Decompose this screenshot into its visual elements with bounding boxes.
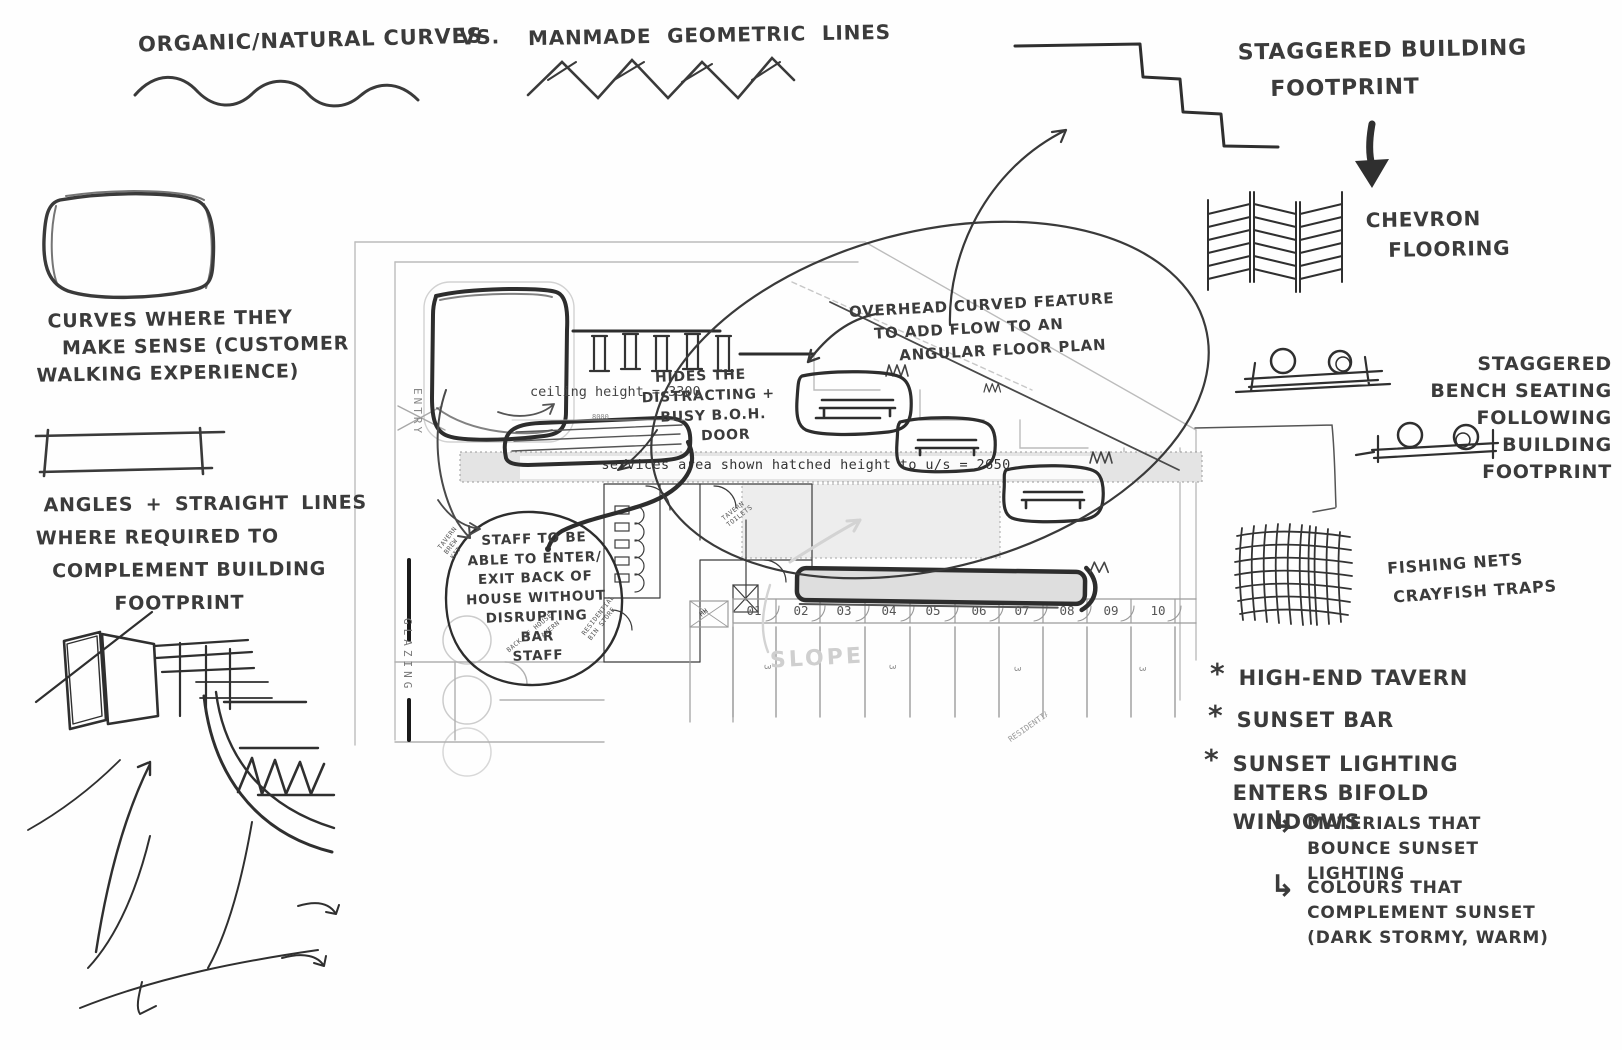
asterisk-icon: * xyxy=(1210,664,1225,693)
note-line: BENCH SEATING xyxy=(1400,378,1612,405)
bullet-high-end-tavern: * HIGH-END TAVERN xyxy=(1210,664,1468,693)
note-line: STAGGERED xyxy=(1400,351,1612,378)
note-curves-where: CURVES WHERE THEY MAKE SENSE (CUSTOMER W… xyxy=(39,303,350,389)
stall-depth-label: 3 xyxy=(1137,666,1147,671)
note-line: COMPLEMENT BUILDING xyxy=(52,553,368,589)
stall-number: 08 xyxy=(1054,603,1080,618)
stall-number: 01 xyxy=(741,603,767,618)
plan-slope-label: SLOPE xyxy=(769,642,864,677)
corner-step-lines xyxy=(1195,425,1336,512)
stall-number: 10 xyxy=(1145,603,1171,618)
note-line: ANGLES + STRAIGHT LINES xyxy=(43,487,367,523)
note-fishing-nets: FISHING NETS CRAYFISH TRAPS xyxy=(1386,542,1558,612)
plan-ceiling-height-label: ceiling height = 3300 xyxy=(530,384,701,400)
note-line: BUILDING xyxy=(1400,432,1612,459)
stall-number: 06 xyxy=(966,603,992,618)
asterisk-icon: * xyxy=(1208,706,1223,735)
sub-bullet-colours: ↳ COLOURS THAT COMPLEMENT SUNSET (DARK S… xyxy=(1270,876,1597,951)
note-staff-circle: STAFF TO BE ABLE TO ENTER/ EXIT BACK OF … xyxy=(446,527,627,670)
note-line: STAGGERED BUILDING xyxy=(1237,29,1527,71)
bullet-text: COLOURS THAT COMPLEMENT SUNSET (DARK STO… xyxy=(1307,876,1597,951)
note-line: BUSY B.O.H. xyxy=(660,404,776,428)
stall-number: 04 xyxy=(876,603,902,618)
fishing-net-sketch xyxy=(1235,524,1352,625)
perspective-sketch xyxy=(28,612,339,1014)
chevron-flooring-sketch xyxy=(1208,192,1342,292)
stall-depth-label: 3 xyxy=(762,664,772,669)
plan-services-label: services area shown hatched height to u/… xyxy=(506,457,1106,473)
stall-depth-label: 3 xyxy=(1012,666,1022,671)
stall-number: 05 xyxy=(920,603,946,618)
note-angles-straight: ANGLES + STRAIGHT LINES WHERE REQUIRED T… xyxy=(35,487,368,622)
bullet-text: SUNSET BAR xyxy=(1237,706,1394,735)
note-staggered-building: STAGGERED BUILDING FOOTPRINT xyxy=(1237,29,1528,108)
stall-number: 03 xyxy=(831,603,857,618)
bench-sketch-top xyxy=(1236,349,1390,392)
note-line: FOLLOWING xyxy=(1400,405,1612,432)
stall-number: 02 xyxy=(788,603,814,618)
zigzag-line-sketch xyxy=(528,58,794,98)
sketch-canvas: ORGANIC/NATURAL CURVES VS. MANMADE GEOME… xyxy=(0,0,1622,1050)
rect-sketch xyxy=(36,428,224,476)
note-line: WALKING EXPERIENCE) xyxy=(36,357,350,389)
wavy-line-sketch xyxy=(135,77,418,106)
plan-dimension-label: 8000 xyxy=(592,413,609,421)
note-chevron-flooring: CHEVRON FLOORING xyxy=(1365,203,1510,266)
note-line: CHEVRON xyxy=(1365,203,1510,236)
note-line: FOOTPRINT xyxy=(114,586,368,621)
note-line: WHERE REQUIRED TO xyxy=(36,520,368,556)
bullet-sunset-bar: * SUNSET BAR xyxy=(1208,706,1394,735)
plan-glazing-label: GLAZING xyxy=(401,618,414,692)
note-line: FLOORING xyxy=(1388,233,1511,265)
note-hides-boh-door: HIDES THE DISTRACTING + BUSY B.O.H. DOOR xyxy=(641,364,777,449)
stall-depth-label: 3 xyxy=(887,664,897,669)
note-line: DOOR xyxy=(701,424,777,447)
corner-arrow-icon: ↳ xyxy=(1270,876,1295,951)
rounded-rect-sketch xyxy=(44,191,214,297)
plan-entry-label: ENTRY xyxy=(411,388,424,436)
note-vs: VS. xyxy=(460,23,501,51)
note-line: FOOTPRINT xyxy=(1270,66,1528,107)
note-staggered-bench: STAGGERED BENCH SEATING FOLLOWING BUILDI… xyxy=(1400,351,1612,486)
note-overhead-feature: OVERHEAD CURVED FEATURE TO ADD FLOW TO A… xyxy=(848,287,1117,370)
thick-down-arrow xyxy=(1355,124,1389,188)
asterisk-icon: * xyxy=(1204,750,1219,837)
note-line: MAKE SENSE (CUSTOMER xyxy=(62,330,350,362)
note-line: FOOTPRINT xyxy=(1400,459,1612,486)
stall-number: 09 xyxy=(1098,603,1124,618)
bullet-text: HIGH-END TAVERN xyxy=(1239,664,1468,693)
stall-number: 07 xyxy=(1009,603,1035,618)
